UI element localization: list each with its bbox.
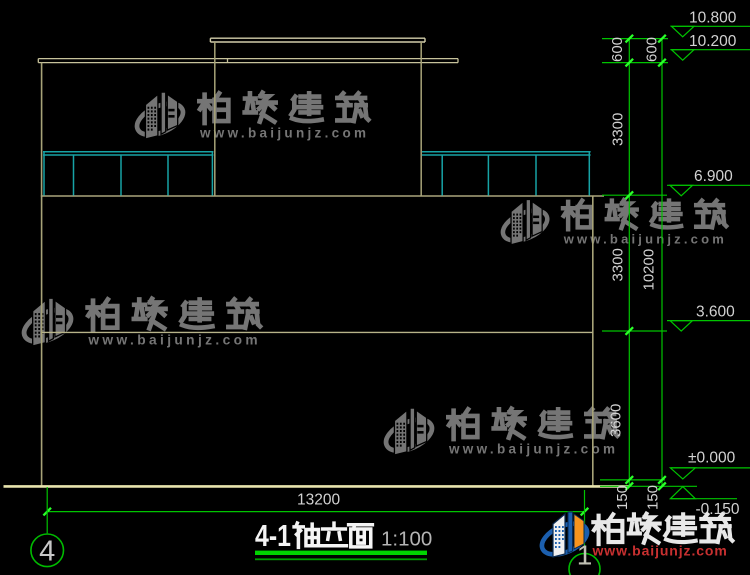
svg-text:10200: 10200 — [641, 249, 658, 291]
svg-text:3300: 3300 — [610, 113, 627, 146]
svg-text:3.600: 3.600 — [696, 304, 735, 321]
svg-text:6.900: 6.900 — [694, 168, 733, 185]
svg-text:±0.000: ±0.000 — [688, 450, 736, 467]
svg-text:10.200: 10.200 — [689, 33, 737, 50]
svg-text:www.baijunjz.com: www.baijunjz.com — [592, 543, 728, 559]
svg-text:4: 4 — [39, 536, 55, 568]
svg-text:4-1: 4-1 — [255, 518, 291, 553]
svg-text:150: 150 — [614, 485, 631, 510]
svg-text:3600: 3600 — [608, 404, 625, 437]
svg-text:1:100: 1:100 — [381, 528, 432, 551]
svg-text:-0.150: -0.150 — [696, 501, 740, 518]
svg-text:1: 1 — [577, 540, 593, 571]
svg-text:3300: 3300 — [610, 248, 627, 281]
svg-text:600: 600 — [644, 37, 661, 62]
svg-text:13200: 13200 — [297, 492, 340, 509]
svg-text:600: 600 — [609, 37, 626, 62]
svg-text:150: 150 — [645, 485, 662, 510]
svg-text:10.800: 10.800 — [689, 10, 737, 27]
